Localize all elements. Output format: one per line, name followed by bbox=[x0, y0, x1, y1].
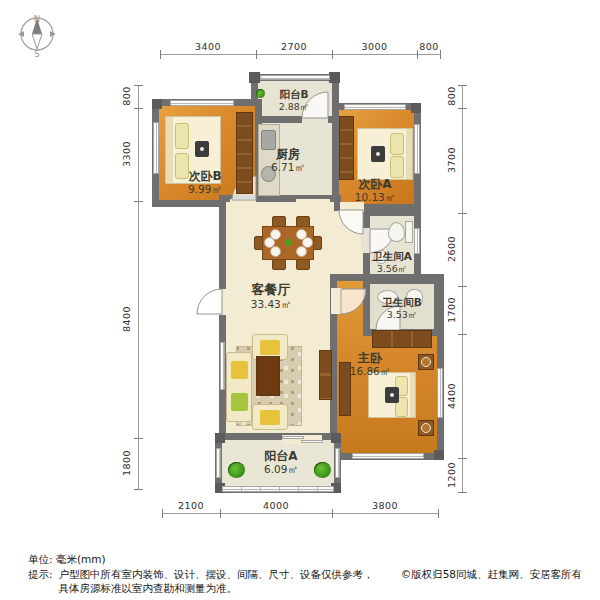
dimension-line-top bbox=[160, 54, 440, 55]
sofa-icon bbox=[226, 352, 252, 422]
dim-label: 800 bbox=[446, 74, 458, 118]
dim-tick bbox=[458, 334, 467, 335]
tip-line-2: 具体房源标准以室内查勘和测量为准。 bbox=[59, 581, 374, 596]
footer-disclaimer: 单位: 毫米(mm) 提示: 户型图中所有室内装饰、设计、摆设、间隔、尺寸、设备… bbox=[28, 552, 590, 596]
room-label-bedroom-b: 次卧B9.99㎡ bbox=[167, 170, 243, 196]
dim-label: 4400 bbox=[446, 374, 458, 418]
double-bed-icon bbox=[357, 128, 413, 180]
dim-label: 1200 bbox=[446, 453, 458, 497]
dim-tick bbox=[458, 458, 467, 459]
dim-label: 3000 bbox=[332, 41, 417, 52]
dim-label: 4000 bbox=[220, 500, 332, 511]
dim-label: 800 bbox=[414, 41, 444, 52]
dim-label: 3800 bbox=[332, 500, 438, 511]
room-label-master: 主卧16.86㎡ bbox=[330, 352, 410, 378]
double-bed-icon bbox=[368, 372, 416, 418]
dimension-line-bottom bbox=[162, 513, 438, 514]
door-arc bbox=[341, 289, 366, 314]
dim-label: 2700 bbox=[256, 41, 332, 52]
room-label-bathroom-a: 卫生间A3.56㎡ bbox=[363, 250, 421, 274]
dim-label: 3300 bbox=[121, 132, 133, 176]
coffee-table-icon bbox=[256, 356, 280, 396]
dim-tick bbox=[134, 201, 143, 202]
dimension-line-right bbox=[462, 85, 463, 492]
dim-tick bbox=[134, 108, 143, 109]
dim-tick bbox=[134, 85, 143, 86]
unit-note: 单位: 毫米(mm) bbox=[28, 552, 590, 567]
toilet-icon bbox=[388, 222, 405, 242]
wardrobe-icon bbox=[372, 330, 432, 348]
dim-tick bbox=[458, 85, 467, 86]
dining-chair bbox=[296, 259, 310, 270]
room-label-balcony-b: 阳台B2.88㎡ bbox=[256, 88, 332, 112]
table-plant-icon bbox=[285, 239, 292, 246]
dim-label: 3400 bbox=[160, 41, 256, 52]
dim-label: 2600 bbox=[446, 227, 458, 271]
dim-label: 1700 bbox=[446, 288, 458, 332]
dim-label: 2100 bbox=[162, 500, 220, 511]
copyright-notice: ©版权归58同城、赶集网、安居客所有 bbox=[401, 567, 582, 582]
room-label-bathroom-b: 卫生间B3.53㎡ bbox=[370, 296, 434, 320]
dim-label: 1800 bbox=[121, 441, 133, 485]
dim-label: 3700 bbox=[446, 138, 458, 182]
nightstand-icon bbox=[418, 354, 434, 370]
armchair-icon bbox=[252, 404, 288, 430]
dimension-line-left bbox=[138, 85, 139, 489]
room-label-living: 客餐厅33.43㎡ bbox=[216, 282, 326, 312]
dim-tick bbox=[458, 286, 467, 287]
tip-label: 提示: bbox=[28, 567, 53, 596]
dim-label: 8400 bbox=[121, 297, 133, 341]
floor-plan-image: N S bbox=[0, 0, 600, 600]
dim-tick bbox=[458, 108, 467, 109]
toilet-tank bbox=[405, 221, 413, 243]
dim-tick bbox=[458, 492, 467, 493]
tip-line-1: 户型图中所有室内装饰、设计、摆设、间隔、尺寸、设备仅供参考， bbox=[59, 567, 374, 582]
door-arc bbox=[339, 210, 363, 234]
wardrobe-icon bbox=[339, 116, 354, 180]
dim-tick bbox=[134, 489, 143, 490]
dim-tick bbox=[438, 509, 439, 518]
dim-tick bbox=[458, 213, 467, 214]
dim-label: 800 bbox=[121, 74, 133, 118]
room-label-bedroom-a: 次卧A10.13㎡ bbox=[337, 178, 413, 204]
room-label-balcony-a: 阳台A6.09㎡ bbox=[226, 450, 336, 476]
nightstand-icon bbox=[418, 420, 434, 436]
kitchen-sink-icon bbox=[261, 130, 276, 150]
dining-table-icon bbox=[262, 226, 314, 260]
dim-tick bbox=[134, 438, 143, 439]
room-label-kitchen: 厨房6.71㎡ bbox=[250, 148, 326, 174]
dining-chair bbox=[272, 259, 286, 270]
